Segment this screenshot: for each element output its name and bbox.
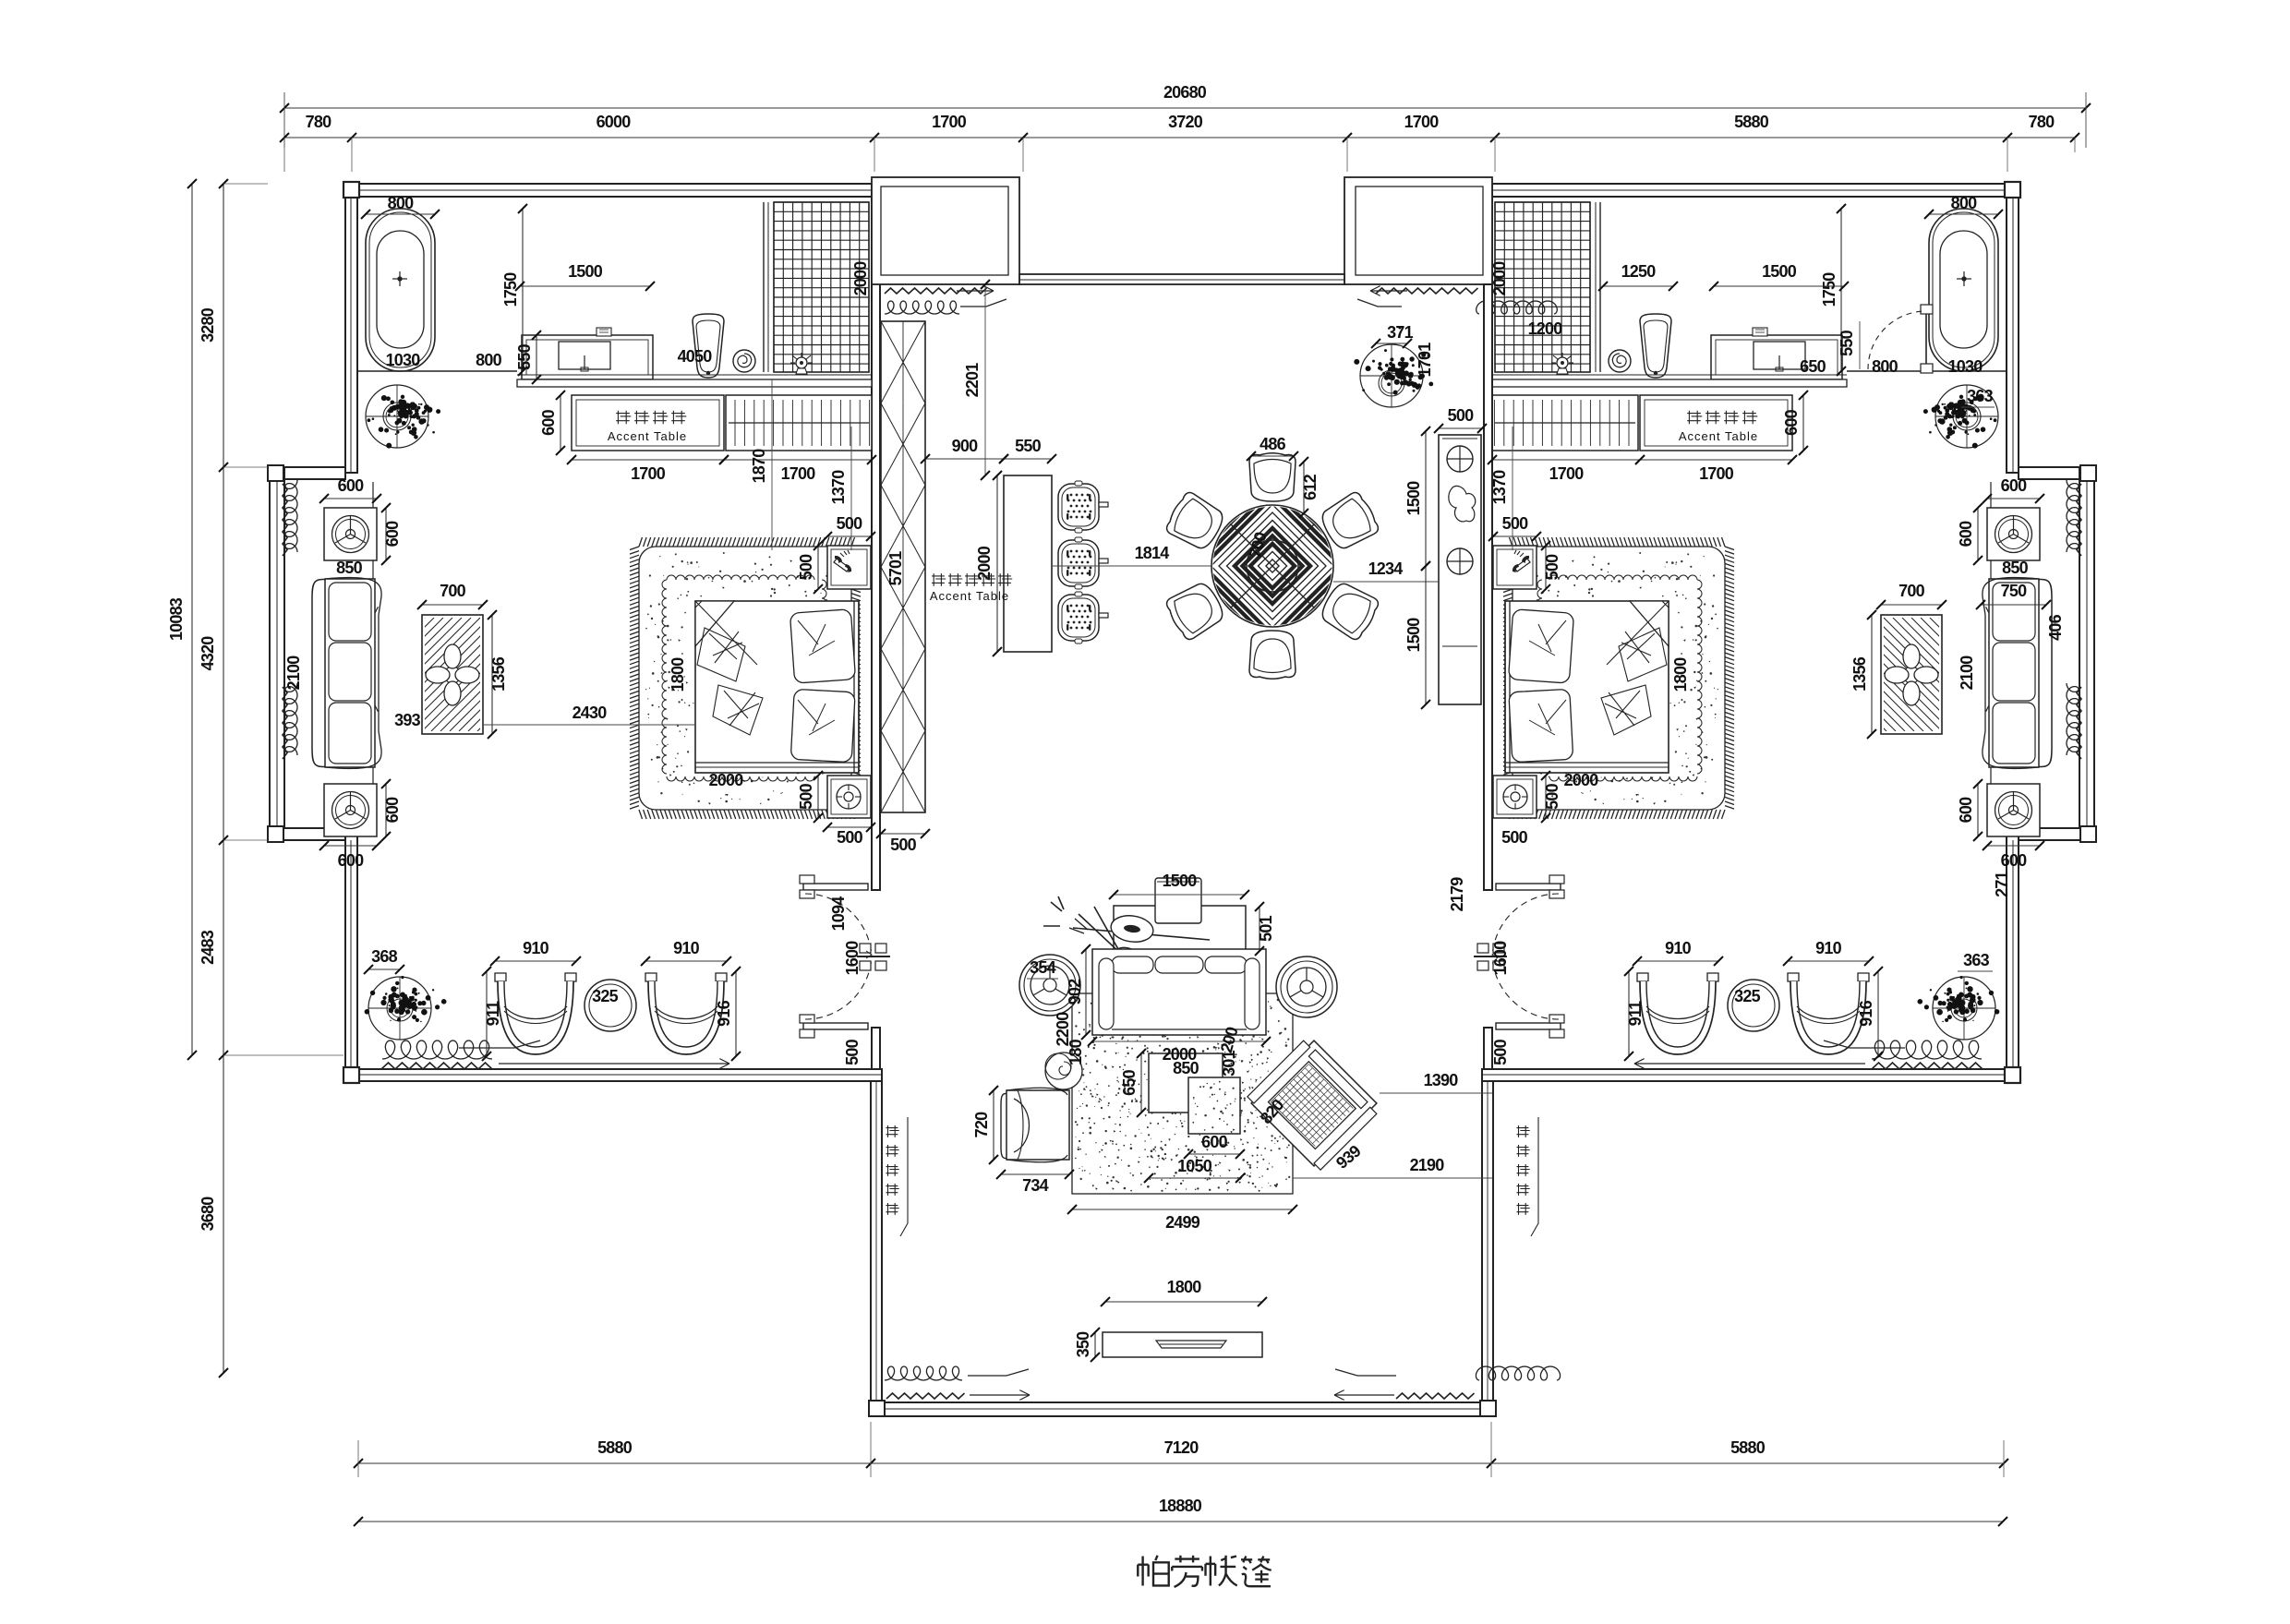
- svg-text:500: 500: [1501, 828, 1527, 847]
- svg-text:1370: 1370: [1490, 470, 1509, 505]
- svg-text:720: 720: [972, 1112, 991, 1137]
- svg-text:5880: 5880: [1730, 1438, 1766, 1457]
- svg-text:600: 600: [2001, 476, 2027, 495]
- svg-text:2201: 2201: [963, 363, 982, 398]
- svg-text:4050: 4050: [678, 347, 713, 366]
- svg-text:2190: 2190: [1410, 1156, 1445, 1174]
- svg-text:363: 363: [1967, 387, 1993, 405]
- svg-text:700: 700: [1898, 582, 1924, 600]
- svg-text:368: 368: [371, 947, 397, 966]
- svg-text:800: 800: [1951, 194, 1977, 212]
- svg-text:1700: 1700: [781, 464, 816, 483]
- svg-text:600: 600: [1201, 1133, 1227, 1151]
- svg-text:650: 650: [1120, 1069, 1139, 1095]
- svg-text:2483: 2483: [199, 930, 217, 965]
- svg-text:500: 500: [1491, 1039, 1510, 1065]
- svg-text:5880: 5880: [597, 1438, 633, 1457]
- svg-text:700: 700: [440, 582, 465, 600]
- svg-text:371: 371: [1387, 323, 1413, 342]
- svg-text:550: 550: [1015, 437, 1041, 455]
- svg-text:900: 900: [952, 437, 978, 455]
- svg-text:600: 600: [1957, 521, 1975, 547]
- svg-text:1700: 1700: [631, 464, 666, 483]
- svg-text:1800: 1800: [1167, 1278, 1202, 1296]
- svg-text:550: 550: [515, 343, 534, 369]
- svg-text:20680: 20680: [1163, 83, 1207, 102]
- svg-text:1750: 1750: [1820, 272, 1838, 307]
- svg-text:1356: 1356: [489, 656, 508, 692]
- svg-text:1500: 1500: [568, 262, 603, 281]
- svg-text:500: 500: [797, 554, 815, 580]
- svg-text:Accent Table: Accent Table: [930, 589, 1009, 603]
- svg-text:2100: 2100: [284, 656, 303, 691]
- svg-text:902: 902: [1066, 979, 1084, 1004]
- svg-text:10083: 10083: [167, 597, 186, 641]
- svg-text:1500: 1500: [1404, 618, 1423, 653]
- svg-text:1700: 1700: [932, 113, 967, 131]
- svg-text:Accent Table: Accent Table: [608, 429, 687, 443]
- svg-text:6000: 6000: [597, 113, 632, 131]
- svg-text:916: 916: [715, 1000, 733, 1026]
- svg-text:1234: 1234: [1368, 559, 1404, 578]
- svg-text:500: 500: [1502, 514, 1528, 533]
- svg-text:1800: 1800: [669, 657, 687, 692]
- svg-text:2430: 2430: [572, 704, 608, 722]
- svg-text:600: 600: [1782, 409, 1801, 435]
- svg-text:1700: 1700: [1699, 464, 1734, 483]
- svg-text:910: 910: [1665, 939, 1691, 957]
- svg-text:363: 363: [1963, 951, 1989, 969]
- svg-text:325: 325: [1734, 987, 1760, 1005]
- svg-text:1050: 1050: [1177, 1157, 1212, 1175]
- svg-text:1500: 1500: [1404, 481, 1423, 516]
- svg-text:910: 910: [523, 939, 548, 957]
- svg-text:500: 500: [1543, 783, 1561, 809]
- svg-text:5701: 5701: [886, 551, 905, 586]
- svg-text:1500: 1500: [1163, 872, 1198, 890]
- svg-text:18880: 18880: [1159, 1497, 1202, 1515]
- svg-text:850: 850: [2002, 559, 2028, 577]
- svg-text:Accent Table: Accent Table: [1679, 429, 1758, 443]
- svg-text:1030: 1030: [386, 351, 421, 369]
- svg-text:800: 800: [1872, 357, 1898, 376]
- svg-text:3680: 3680: [199, 1197, 217, 1232]
- svg-text:1500: 1500: [1762, 262, 1797, 281]
- svg-text:406: 406: [2046, 614, 2065, 640]
- svg-text:850: 850: [1173, 1059, 1199, 1077]
- svg-text:600: 600: [2001, 851, 2027, 870]
- svg-text:1094: 1094: [829, 896, 848, 932]
- svg-text:500: 500: [1448, 406, 1474, 425]
- svg-text:911: 911: [484, 1001, 502, 1026]
- svg-text:2499: 2499: [1165, 1213, 1200, 1232]
- svg-text:500: 500: [890, 836, 916, 854]
- svg-text:7120: 7120: [1164, 1438, 1199, 1457]
- svg-text:500: 500: [837, 828, 862, 847]
- svg-text:2000: 2000: [1490, 261, 1509, 296]
- svg-text:780: 780: [306, 113, 331, 131]
- svg-text:354: 354: [1030, 958, 1055, 977]
- svg-text:800: 800: [476, 351, 501, 369]
- svg-text:612: 612: [1301, 474, 1320, 499]
- svg-text:1370: 1370: [829, 470, 848, 505]
- svg-text:600: 600: [338, 851, 364, 870]
- svg-text:3720: 3720: [1168, 113, 1203, 131]
- svg-text:600: 600: [338, 476, 364, 495]
- svg-text:1870: 1870: [750, 449, 768, 484]
- svg-text:1814: 1814: [1135, 544, 1170, 562]
- svg-text:500: 500: [797, 783, 815, 809]
- svg-text:1600: 1600: [1491, 941, 1510, 976]
- svg-text:1200: 1200: [1528, 319, 1563, 338]
- svg-text:600: 600: [1957, 797, 1975, 823]
- svg-text:2000: 2000: [709, 771, 744, 789]
- svg-text:500: 500: [843, 1039, 862, 1065]
- svg-text:550: 550: [1838, 330, 1856, 355]
- svg-text:500: 500: [1543, 554, 1561, 580]
- svg-text:600: 600: [383, 521, 402, 547]
- svg-text:1030: 1030: [1948, 357, 1983, 376]
- svg-text:2200: 2200: [1054, 1012, 1072, 1047]
- svg-text:911: 911: [1626, 1001, 1645, 1026]
- svg-text:500: 500: [837, 514, 862, 533]
- svg-text:1390: 1390: [1424, 1071, 1459, 1089]
- svg-text:3280: 3280: [199, 307, 217, 343]
- svg-text:501: 501: [1257, 915, 1275, 941]
- svg-text:600: 600: [383, 797, 402, 823]
- svg-text:271: 271: [1993, 871, 2011, 896]
- svg-text:600: 600: [539, 409, 558, 435]
- svg-text:800: 800: [388, 194, 414, 212]
- svg-text:2100: 2100: [1958, 656, 1976, 691]
- svg-text:1600: 1600: [843, 941, 862, 976]
- svg-text:1250: 1250: [1621, 262, 1657, 281]
- svg-text:1800: 1800: [1671, 657, 1690, 692]
- svg-text:780: 780: [2029, 113, 2055, 131]
- svg-text:1700: 1700: [1549, 464, 1585, 483]
- svg-text:734: 734: [1022, 1176, 1048, 1195]
- svg-text:850: 850: [336, 559, 362, 577]
- svg-text:916: 916: [1857, 1000, 1875, 1026]
- svg-text:910: 910: [673, 939, 699, 957]
- svg-text:4320: 4320: [199, 636, 217, 671]
- svg-text:393: 393: [394, 711, 420, 729]
- svg-text:2179: 2179: [1448, 877, 1466, 912]
- svg-text:1701: 1701: [1416, 343, 1434, 378]
- svg-text:910: 910: [1815, 939, 1841, 957]
- svg-text:1700: 1700: [1404, 113, 1440, 131]
- svg-text:1356: 1356: [1850, 656, 1869, 692]
- svg-text:486: 486: [1259, 435, 1285, 453]
- svg-text:750: 750: [2001, 582, 2027, 600]
- svg-text:2000: 2000: [1564, 771, 1599, 789]
- svg-text:5880: 5880: [1734, 113, 1769, 131]
- svg-text:650: 650: [1800, 357, 1826, 376]
- svg-text:350: 350: [1074, 1331, 1092, 1357]
- svg-text:325: 325: [592, 987, 618, 1005]
- svg-text:2000: 2000: [851, 261, 870, 296]
